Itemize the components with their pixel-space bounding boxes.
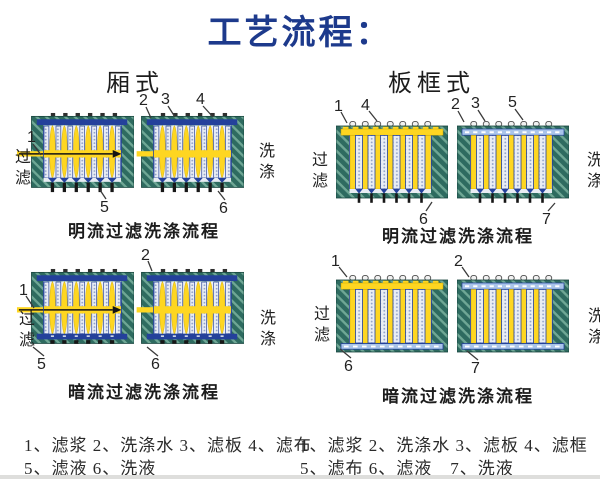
diagram-chamber-open-filtration — [16, 110, 134, 203]
diagram-frame-open-washing — [457, 119, 569, 209]
callout-label: 2 — [141, 248, 150, 264]
callout-label: 4 — [196, 92, 205, 108]
caption-closed-flow-frame: 暗流过滤洗涤流程 — [352, 382, 564, 407]
side-label-washing: 洗涤 — [580, 151, 600, 193]
callout-label: 6 — [219, 201, 228, 217]
diagram-chamber-closed-washing — [126, 266, 244, 359]
callout-label: 2 — [454, 254, 463, 270]
diagram-frame-closed-washing — [457, 273, 569, 363]
callout-label: 3 — [161, 92, 170, 108]
side-label-filtration: 过滤 — [305, 151, 329, 193]
diagram-frame-closed-filtration — [336, 273, 448, 363]
caption-closed-flow-chamber: 暗流过滤洗涤流程 — [38, 378, 250, 403]
bottom-edge-strip — [0, 475, 600, 479]
caption-open-flow-frame: 明流过滤洗涤流程 — [352, 222, 564, 247]
callout-label: 5 — [37, 357, 46, 373]
caption-open-flow-chamber: 明流过滤洗涤流程 — [38, 217, 250, 242]
callout-label: 6 — [344, 359, 353, 375]
callout-label: 4 — [361, 98, 370, 114]
diagram-chamber-open-washing — [126, 110, 244, 203]
page-title: 工艺流程： — [0, 5, 600, 54]
callout-label: 1 — [334, 99, 343, 115]
callout-label: 2 — [139, 93, 148, 109]
column-header-plate-frame-type: 板框式 — [388, 63, 475, 98]
side-label-filtration: 过滤 — [12, 310, 36, 352]
callout-label: 5 — [100, 200, 109, 216]
side-label-washing: 洗涤 — [581, 307, 600, 349]
side-label-filtration: 过滤 — [307, 305, 331, 347]
callout-label: 2 — [451, 97, 460, 113]
callout-label: 6 — [151, 357, 160, 373]
callout-label: 1 — [19, 283, 28, 299]
side-label-washing: 洗涤 — [253, 309, 277, 351]
legend-chamber-line-1: 1、滤浆 2、洗涤水 3、滤板 4、滤布 — [24, 431, 312, 456]
callout-label: 1 — [331, 254, 340, 270]
callout-label: 3 — [471, 96, 480, 112]
side-label-washing: 洗涤 — [252, 142, 276, 184]
callout-label: 5 — [508, 95, 517, 111]
process-flow-figure: 工艺流程： 厢式 板框式 过滤 洗涤 过滤 洗涤 过滤 洗涤 过滤 洗涤 1 2… — [0, 0, 600, 479]
callout-label: 1 — [27, 130, 36, 146]
callout-label: 7 — [471, 361, 480, 377]
diagram-frame-open-filtration — [336, 119, 448, 209]
column-header-chamber-type: 厢式 — [106, 63, 164, 98]
side-label-filtration: 过滤 — [8, 148, 32, 190]
legend-frame-line-1: 1、滤浆 2、洗涤水 3、滤板 4、滤框 — [300, 431, 588, 456]
